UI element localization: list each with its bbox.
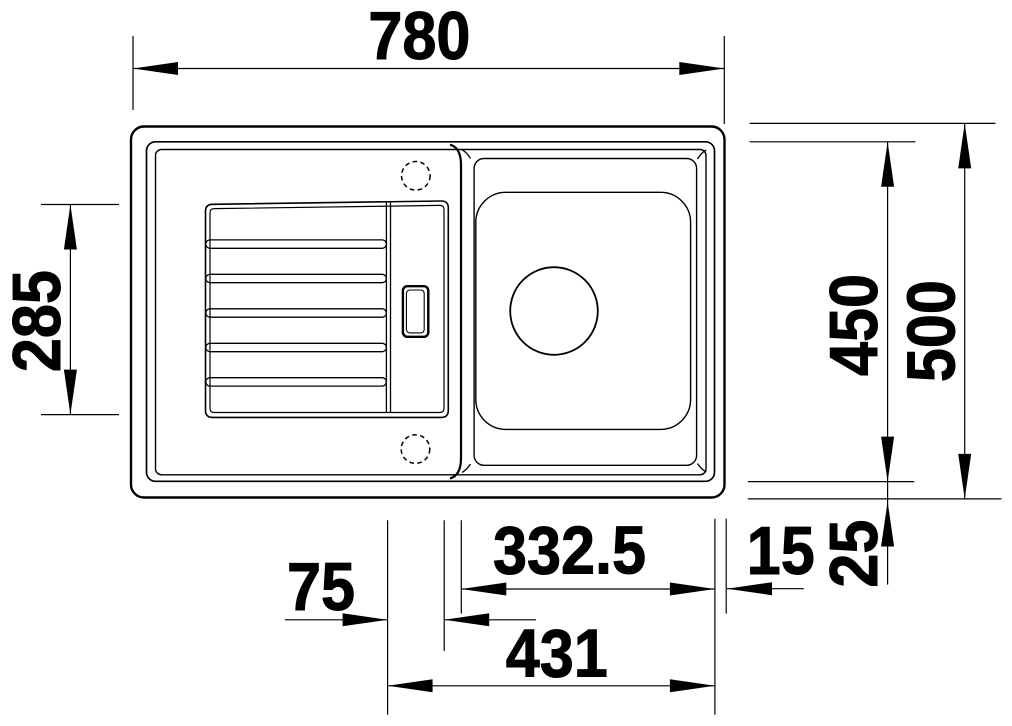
svg-text:500: 500 — [893, 280, 970, 382]
svg-text:15: 15 — [747, 512, 815, 589]
svg-text:332.5: 332.5 — [493, 511, 646, 588]
svg-text:285: 285 — [0, 270, 75, 372]
svg-text:431: 431 — [506, 614, 608, 691]
svg-text:450: 450 — [815, 274, 892, 376]
svg-text:75: 75 — [287, 548, 355, 625]
svg-text:25: 25 — [815, 520, 892, 588]
svg-text:780: 780 — [368, 0, 470, 74]
